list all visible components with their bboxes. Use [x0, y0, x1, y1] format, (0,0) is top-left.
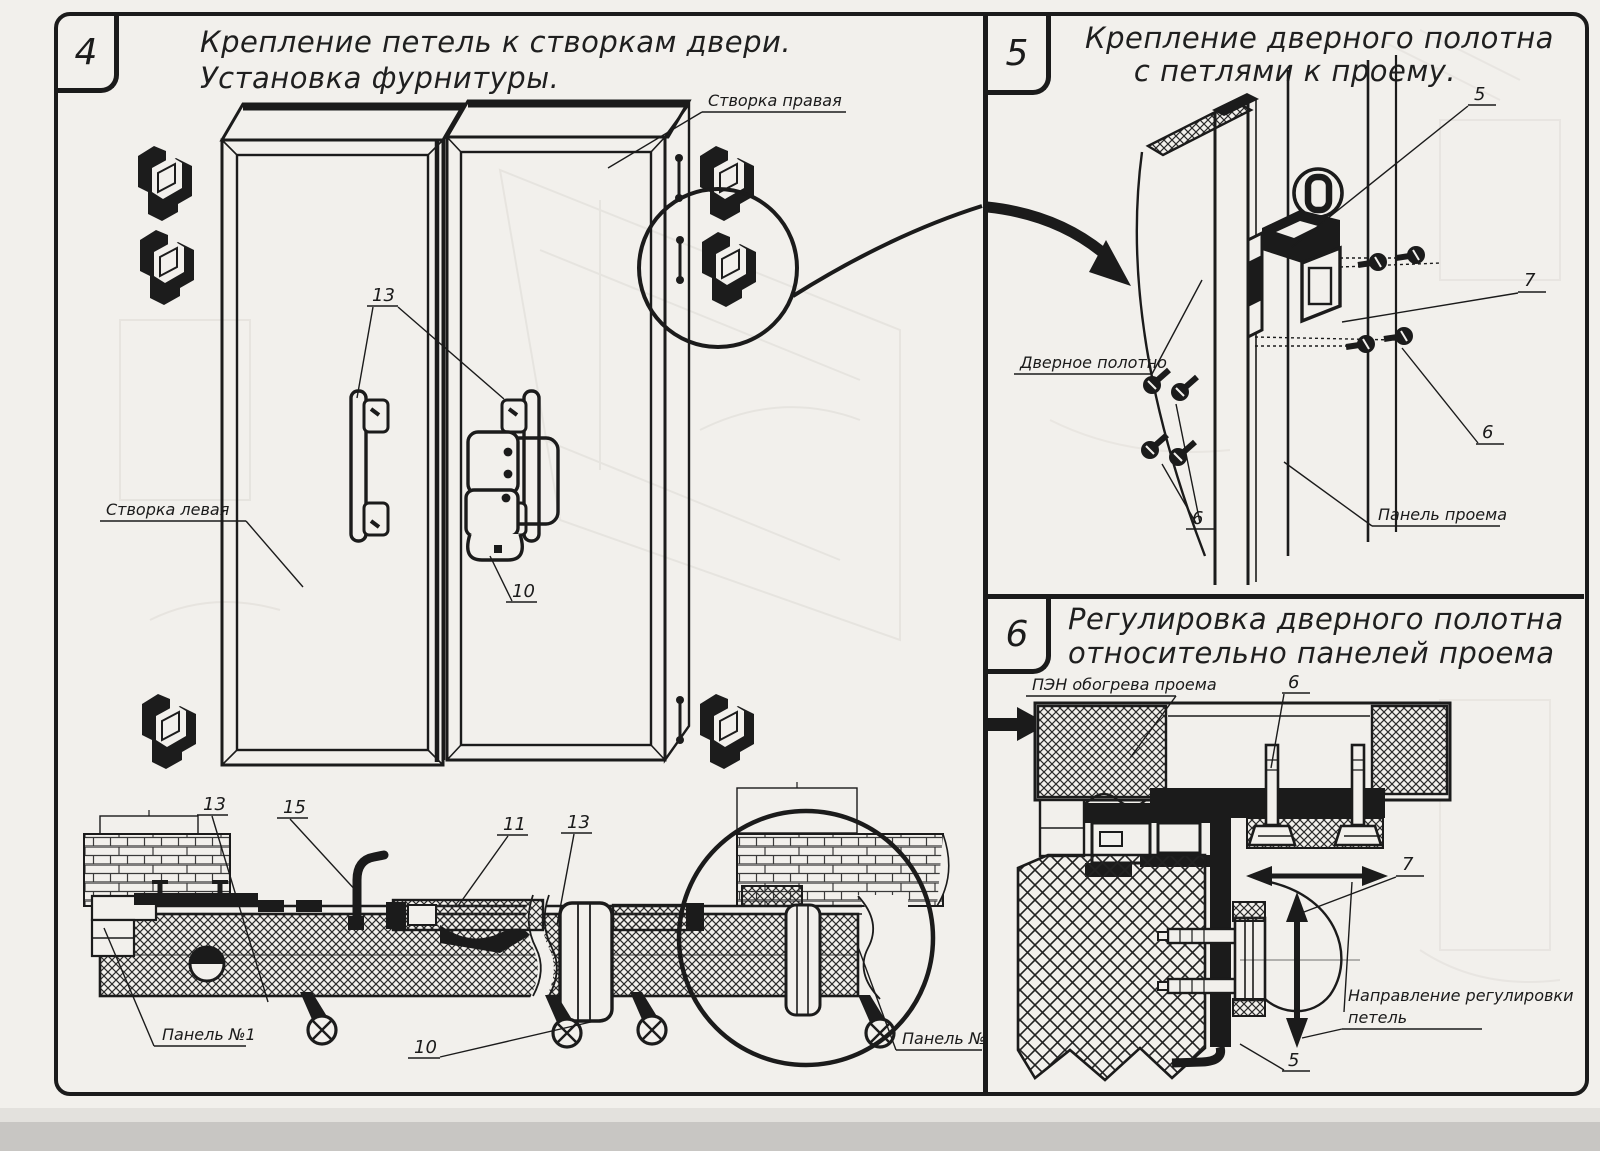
grommet-ring [1294, 169, 1342, 217]
svg-text:5: 5 [1474, 84, 1485, 105]
hinge-icon [142, 694, 196, 769]
panel6-drawing: ПЭН обогрева проема 6 7 Направление регу… [987, 599, 1588, 1092]
svg-text:Створка правая: Створка правая [708, 91, 842, 110]
screw-icon [1171, 377, 1197, 401]
screw-icon [1396, 246, 1425, 264]
callout-11-section: 11 [458, 814, 528, 906]
hinge-swing-arc [1264, 882, 1341, 1011]
scanner-background [0, 1122, 1600, 1151]
hinge-icon [700, 694, 754, 769]
svg-text:Створка левая: Створка левая [106, 500, 230, 519]
hinge-icon [140, 230, 194, 305]
svg-text:6: 6 [1288, 672, 1299, 693]
callout-13-handles: 13 [357, 285, 504, 399]
hinge-icon [138, 146, 192, 221]
svg-text:петель: петель [1348, 1008, 1407, 1027]
wall-block [1018, 855, 1205, 1080]
callout-6-right: 6 [1402, 348, 1504, 444]
svg-text:15: 15 [283, 797, 306, 818]
curved-arrow-tail [793, 206, 982, 296]
callout-10-latch: 10 [490, 556, 537, 602]
door-gap-stiles [437, 139, 444, 762]
hinge-icon [700, 146, 754, 221]
svg-text:10: 10 [414, 1037, 437, 1058]
svg-text:5: 5 [1288, 1050, 1299, 1071]
lintel-bar [1035, 703, 1450, 818]
hinge-assembly-5 [1248, 210, 1340, 337]
screw-icon [1141, 435, 1167, 459]
svg-text:11: 11 [503, 814, 526, 835]
label-left-leaf: Створка левая [100, 500, 303, 587]
svg-text:Панель проема: Панель проема [1378, 505, 1507, 524]
caster-icon [858, 995, 894, 1047]
cross-section: 13 15 11 13 10 Панель №1 [84, 782, 983, 1065]
callout-6-left: 6 [1162, 404, 1214, 529]
svg-text:6: 6 [1482, 422, 1493, 443]
panel5-drawing: 5 7 6 6 Дверное полотно Панель проема [987, 12, 1588, 594]
screw-pin-icon [675, 154, 683, 202]
screw-icon [1169, 442, 1195, 466]
label-door-leaf: Дверное полотно [1014, 280, 1202, 374]
svg-text:Панель №2: Панель №2 [902, 1029, 983, 1048]
callout-5: 5 [1292, 84, 1496, 247]
callout-15-section: 15 [277, 797, 358, 893]
hinge-bracket-6 [1233, 902, 1265, 1016]
hinge-icon [702, 232, 756, 307]
caster-icon [300, 992, 336, 1044]
svg-text:7: 7 [1402, 854, 1414, 875]
panel4-drawing: 13 10 Створка правая Створка левая [56, 12, 983, 1092]
caster-icon [630, 992, 666, 1044]
latch-assembly [466, 432, 558, 560]
svg-text:ПЭН обогрева проема: ПЭН обогрева проема [1032, 675, 1217, 694]
callout-5: 5 [1240, 1044, 1310, 1071]
left-door-leaf [222, 104, 464, 765]
svg-text:10: 10 [512, 581, 535, 602]
svg-text:13: 13 [372, 285, 395, 306]
svg-text:7: 7 [1524, 270, 1536, 291]
screw-icon [1384, 327, 1413, 345]
callout-7: 7 [1342, 270, 1546, 322]
svg-text:13: 13 [203, 794, 226, 815]
svg-text:Направление регулировки: Направление регулировки [1348, 986, 1573, 1005]
screw-icon [1346, 335, 1375, 353]
latch-housing-section [560, 903, 612, 1021]
svg-text:Панель №1: Панель №1 [162, 1025, 256, 1044]
scan-edge-shadow [0, 1108, 1600, 1122]
curved-arrow-head [987, 207, 1131, 286]
svg-text:Дверное полотно: Дверное полотно [1019, 353, 1167, 372]
svg-text:13: 13 [567, 812, 590, 833]
screw-icon [1358, 253, 1387, 271]
